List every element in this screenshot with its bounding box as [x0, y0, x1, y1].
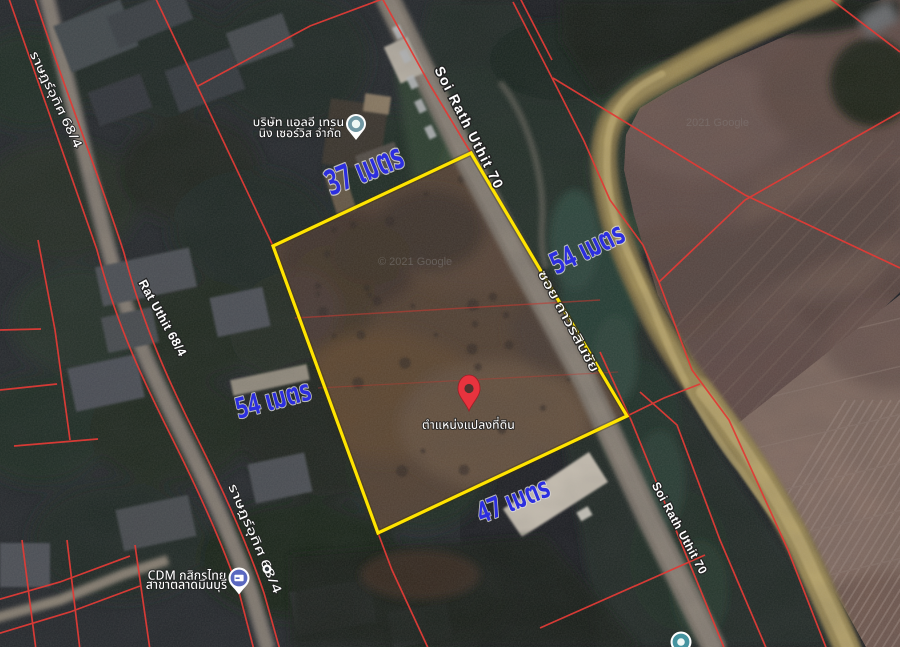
svg-text:2021 Google: 2021 Google: [686, 117, 749, 129]
svg-text:© 2021 Google: © 2021 Google: [378, 256, 452, 268]
